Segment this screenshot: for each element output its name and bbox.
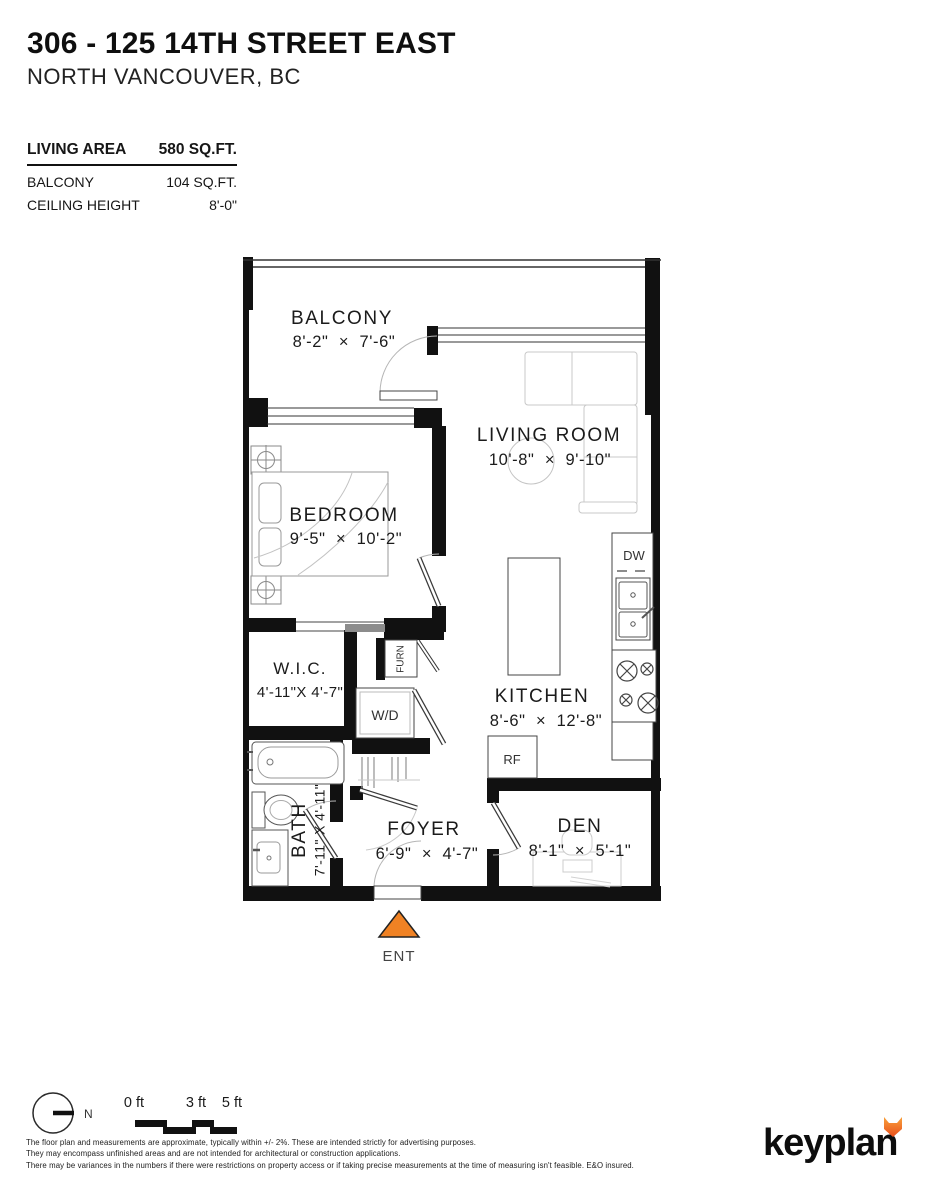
scale-tick: 0 ft	[124, 1095, 144, 1111]
entrance-label: ENT	[383, 948, 416, 965]
scale-tick: 3 ft	[186, 1095, 206, 1111]
room-dims-bedroom: 9'-5" × 10'-2"	[290, 530, 402, 548]
kitchen-fixtures	[488, 533, 658, 778]
wall-segment	[243, 886, 374, 901]
balcony-door	[380, 391, 437, 400]
entrance-arrow-icon	[379, 911, 419, 937]
wall-segment	[344, 630, 357, 738]
wall-segment	[432, 426, 446, 556]
sofa-top-section	[525, 352, 637, 405]
bedroom-window	[267, 408, 414, 424]
fox-icon	[884, 1116, 903, 1138]
room-label-living-room: LIVING ROOM	[477, 425, 621, 446]
wall-segment	[645, 258, 660, 415]
wall-segment	[376, 638, 385, 680]
north-arrow: N	[33, 1093, 93, 1133]
dishwasher-label: DW	[623, 548, 645, 563]
compass-label: N	[84, 1107, 93, 1121]
closet-hangers	[362, 757, 406, 788]
room-label-bedroom: BEDROOM	[289, 505, 398, 526]
sliding-door	[345, 624, 385, 632]
furnace-label: FURN	[396, 645, 407, 673]
sofa-armrest	[579, 502, 637, 513]
room-dims-living-room: 10'-8" × 9'-10"	[489, 451, 611, 469]
keyplan-logo: keyplan	[763, 1122, 898, 1165]
scale-bar-segments	[135, 1120, 237, 1134]
pillow	[259, 528, 281, 566]
wall-segment	[352, 738, 430, 754]
room-dims-den: 8'-1" × 5'-1"	[529, 842, 632, 860]
wall-segment	[414, 408, 442, 428]
kitchen-counter	[612, 533, 653, 760]
wall-segment	[487, 778, 661, 791]
wall-segment	[243, 257, 253, 310]
sink-basin	[619, 612, 647, 637]
wall-segment	[421, 886, 661, 901]
desk-paper	[563, 860, 592, 872]
disclaimer-line: There may be variances in the numbers if…	[26, 1160, 634, 1171]
pillow	[259, 483, 281, 523]
room-label-balcony: BALCONY	[291, 308, 393, 329]
bedroom-door-inner	[419, 558, 439, 606]
wall-segment	[243, 310, 249, 886]
room-label-bath: BATH	[289, 802, 310, 858]
sink-basin	[619, 582, 647, 609]
room-label-den: DEN	[558, 816, 603, 837]
toilet-tank	[252, 792, 265, 828]
kitchen-island	[508, 558, 560, 675]
room-dims-bath: 7'-11" X 4'-11"	[312, 784, 328, 876]
disclaimer-line: They may encompass unfinished areas and …	[26, 1148, 634, 1159]
room-dims-wic: 4'-11"X 4'-7"	[257, 684, 343, 701]
wall-segment	[243, 398, 268, 427]
balcony-railing	[243, 260, 661, 267]
disclaimer: The floor plan and measurements are appr…	[26, 1137, 634, 1171]
room-dims-balcony: 8'-2" × 7'-6"	[293, 333, 396, 351]
wall-segment	[384, 618, 444, 640]
fridge-label: RF	[503, 752, 520, 767]
room-dims-kitchen: 8'-6" × 12'-8"	[490, 712, 602, 730]
wall-segment	[243, 618, 296, 632]
wall-segment	[330, 858, 343, 886]
wall-segment	[243, 726, 357, 740]
scale-tick: 5 ft	[222, 1095, 242, 1111]
doors	[296, 336, 519, 899]
furnace-door-inner	[418, 641, 438, 671]
den-door-inner	[493, 803, 519, 848]
closet-door-inner	[360, 790, 417, 808]
wall-segment	[487, 791, 499, 803]
room-dims-foyer: 6'-9" × 4'-7"	[376, 845, 479, 863]
disclaimer-line: The floor plan and measurements are appr…	[26, 1137, 634, 1148]
stove	[612, 650, 656, 722]
living-room-window	[438, 328, 645, 342]
fox-shape	[884, 1117, 902, 1137]
room-label-wic: W.I.C.	[273, 659, 326, 678]
scale-bar: 0 ft 3 ft 5 ft	[124, 1095, 242, 1134]
washer-dryer-label: W/D	[371, 707, 398, 723]
entry-door	[374, 886, 421, 899]
room-label-kitchen: KITCHEN	[495, 686, 590, 707]
floor-plan: BALCONY 8'-2" × 7'-6" LIVING ROOM 10'-8"…	[0, 0, 927, 1200]
room-label-foyer: FOYER	[387, 819, 460, 840]
entrance-marker: ENT	[379, 911, 419, 965]
washer-door-inner	[414, 690, 444, 744]
wall-segment	[427, 326, 438, 355]
